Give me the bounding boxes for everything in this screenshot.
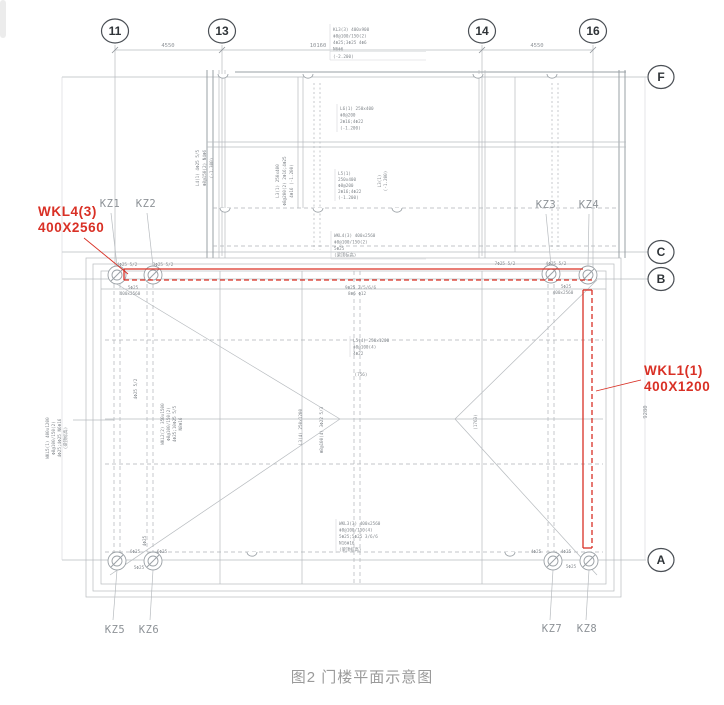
note-line: Φ8@150(2) N4Φ6 bbox=[202, 149, 208, 186]
rebar-label: 4Φ25 5/2 bbox=[546, 261, 567, 267]
rebar-label: 5Φ25 bbox=[566, 564, 577, 570]
note-line: 5Φ25 bbox=[334, 246, 345, 252]
note-line: 8Φ6 Φ12 bbox=[348, 291, 367, 297]
grid-bubbles: 11 13 14 16 F C B A bbox=[102, 19, 675, 572]
note-line: N8Φ16 bbox=[178, 417, 184, 430]
note-line: (梁顶标高) bbox=[62, 427, 69, 449]
note-line: (梁顶标高) bbox=[334, 252, 356, 259]
column-label-kz3: KZ3 bbox=[536, 199, 556, 211]
note-line: (-1.200) bbox=[340, 126, 361, 132]
callout-wkl1-name: WKL1(1) bbox=[644, 363, 703, 378]
column-label-kz6: KZ6 bbox=[139, 624, 159, 636]
rebar-label: 4Φ25 5/2 bbox=[117, 262, 138, 268]
structural-plan-drawing: 4550 10160 4550 9280 bbox=[0, 0, 724, 650]
note-line: Φ8@200(2) 2Φ16;4Φ25 bbox=[282, 156, 288, 206]
note-line: (1763) bbox=[473, 414, 479, 430]
note-line: (-2.200) bbox=[333, 54, 354, 60]
note-line: L3(4) 250x1200 bbox=[298, 408, 304, 445]
column-label-kz8: KZ8 bbox=[577, 623, 597, 635]
leader-line-wkl4 bbox=[84, 238, 128, 274]
note-line: Φ8@100/150(4) bbox=[339, 528, 373, 534]
note-line: WKL3(3) 400x2560 bbox=[339, 521, 381, 527]
callout-wkl4-name: WKL4(3) bbox=[38, 204, 97, 219]
dim-label: 10160 bbox=[310, 43, 327, 49]
rebar-label: 6Φ25 bbox=[130, 549, 141, 555]
note-line: 4Φ25;3Φ25 4Φ6 bbox=[333, 40, 367, 46]
note-line: 4Φ25;4Φ25 N6Φ16 bbox=[57, 418, 63, 457]
note-line: N16Φ16 bbox=[339, 541, 355, 547]
rebar-label: 4Φ25 bbox=[561, 549, 572, 555]
note-line: Φ8@100/150(2) bbox=[334, 240, 368, 246]
annotations: KL3(3) 400x900 Φ8@100/150(2) 4Φ25;3Φ25 4… bbox=[45, 24, 577, 571]
grid-bubble-a: A bbox=[657, 553, 666, 567]
note-line: 4Φ22 bbox=[353, 351, 364, 357]
note-line: Φ8@200 bbox=[340, 113, 356, 119]
grid-bubble-16: 16 bbox=[586, 24, 600, 38]
note-line: N6Φ6 bbox=[333, 47, 344, 53]
columns bbox=[108, 213, 598, 620]
rebar-label: 4Φ25 bbox=[142, 535, 148, 546]
note-line: WKL4(3) 400x2560 bbox=[334, 233, 376, 239]
dim-label: 4550 bbox=[161, 43, 174, 49]
rebar-label: 400x2560 bbox=[553, 290, 574, 296]
note-line: 4Φ16 (-1.200) bbox=[289, 164, 295, 198]
note-line: L3(1) 250x400 bbox=[275, 164, 281, 198]
note-line: (-1.300) bbox=[209, 158, 215, 179]
column-label-kz2: KZ2 bbox=[136, 198, 156, 210]
note-line: 2Φ16;4Φ22 bbox=[340, 119, 364, 125]
note-line: 9Φ25 2/5/6/6 bbox=[345, 285, 376, 291]
column-label-kz7: KZ7 bbox=[542, 623, 562, 635]
note-line: L3(1) bbox=[377, 175, 383, 188]
note-line: 250x400 bbox=[338, 177, 357, 183]
note-line: Φ8@100/150(2) bbox=[333, 34, 367, 40]
note-line: (-1.200) bbox=[383, 171, 389, 192]
note-line: 4Φ25;10Φ25 5/5 bbox=[172, 405, 178, 442]
column-label-kz4: KZ4 bbox=[579, 199, 599, 211]
note-line: KL3(3) 400x900 bbox=[333, 27, 370, 33]
leader-line-wkl1 bbox=[596, 380, 641, 391]
rebar-label: 6Φ25 bbox=[157, 549, 168, 555]
callout-wkl1-size: 400X1200 bbox=[644, 379, 710, 394]
figure-caption: 图2 门楼平面示意图 bbox=[0, 666, 724, 687]
rebar-label: 4Φ25 bbox=[531, 549, 542, 555]
rebar-label: 3Φ25 5/2 bbox=[153, 262, 174, 268]
rebar-label: 5Φ25 bbox=[561, 284, 572, 290]
grid-bubble-13: 13 bbox=[215, 24, 229, 38]
note-line: (756) bbox=[355, 372, 368, 378]
note-line: Φ8@100/150(2) bbox=[51, 421, 57, 455]
porch-structure bbox=[207, 70, 626, 258]
note-line: WKL2(2) 350x1500 bbox=[160, 403, 166, 445]
note-line: L5(1) bbox=[338, 171, 351, 177]
grid-bubble-b: B bbox=[657, 272, 666, 286]
note-line: 4Φ25 5/2 bbox=[133, 378, 139, 399]
dim-label: 4550 bbox=[530, 43, 543, 49]
dim-label-right: 9280 bbox=[643, 405, 649, 418]
note-line: (梁顶标高) bbox=[339, 546, 361, 553]
rebar-label: 5Φ25 bbox=[134, 565, 145, 571]
note-line: Φ8@100(4) 3Φ22 5/3 bbox=[319, 406, 325, 453]
drawing-canvas: 4550 10160 4550 9280 bbox=[0, 0, 724, 705]
callout-wkl4-size: 400X2560 bbox=[38, 220, 104, 235]
note-line: WKL5(1) 400x1200 bbox=[45, 417, 51, 459]
grid-bubble-c: C bbox=[657, 245, 666, 259]
grid-bubble-11: 11 bbox=[109, 24, 122, 38]
note-line: Φ8@200 bbox=[338, 183, 354, 189]
rebar-label: 7Φ25 5/2 bbox=[495, 261, 516, 267]
note-line: L5(4) 250x1200 bbox=[353, 338, 390, 344]
grid-bubble-f: F bbox=[657, 70, 664, 84]
note-line: (-1.200) bbox=[338, 195, 359, 201]
grid-bubble-14: 14 bbox=[475, 24, 489, 38]
note-line: Φ8@100(4) bbox=[353, 345, 376, 351]
rebar-label: 5Φ25 bbox=[128, 285, 139, 291]
rebar-label: 400x2560 bbox=[120, 291, 141, 297]
column-label-kz1: KZ1 bbox=[100, 198, 120, 210]
note-line: L4(1) 4Φ25 5/5 bbox=[195, 149, 201, 186]
column-label-kz5: KZ5 bbox=[105, 624, 125, 636]
note-line: Φ8@100/150(2) bbox=[166, 407, 172, 441]
note-line: 2Φ16;4Φ22 bbox=[338, 189, 362, 195]
note-line: L6(1) 250x400 bbox=[340, 106, 374, 112]
note-line: 5Φ25;5Φ25 3/6/6 bbox=[339, 534, 378, 540]
